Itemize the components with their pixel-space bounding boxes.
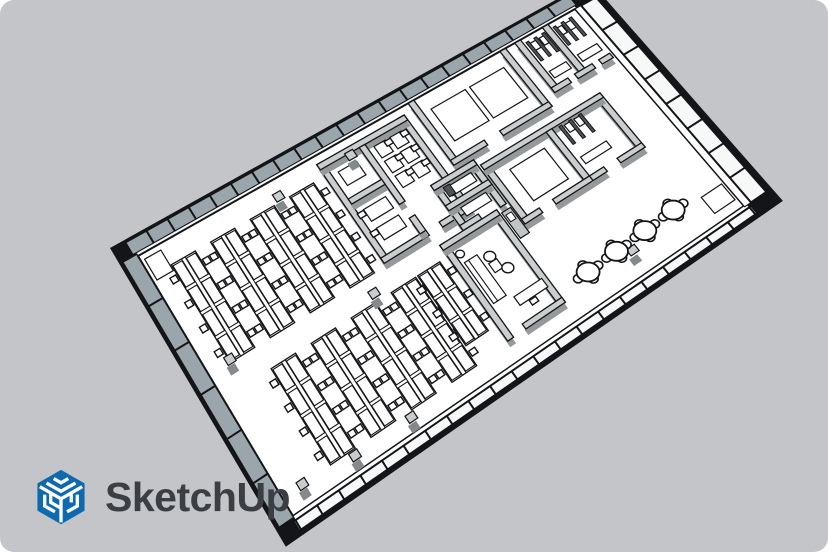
sketchup-logo: SketchUp: [32, 468, 290, 526]
sketchup-wordmark: SketchUp: [105, 477, 290, 518]
sketchup-cube-icon: [32, 468, 90, 526]
image-card: SketchUp: [0, 0, 828, 552]
